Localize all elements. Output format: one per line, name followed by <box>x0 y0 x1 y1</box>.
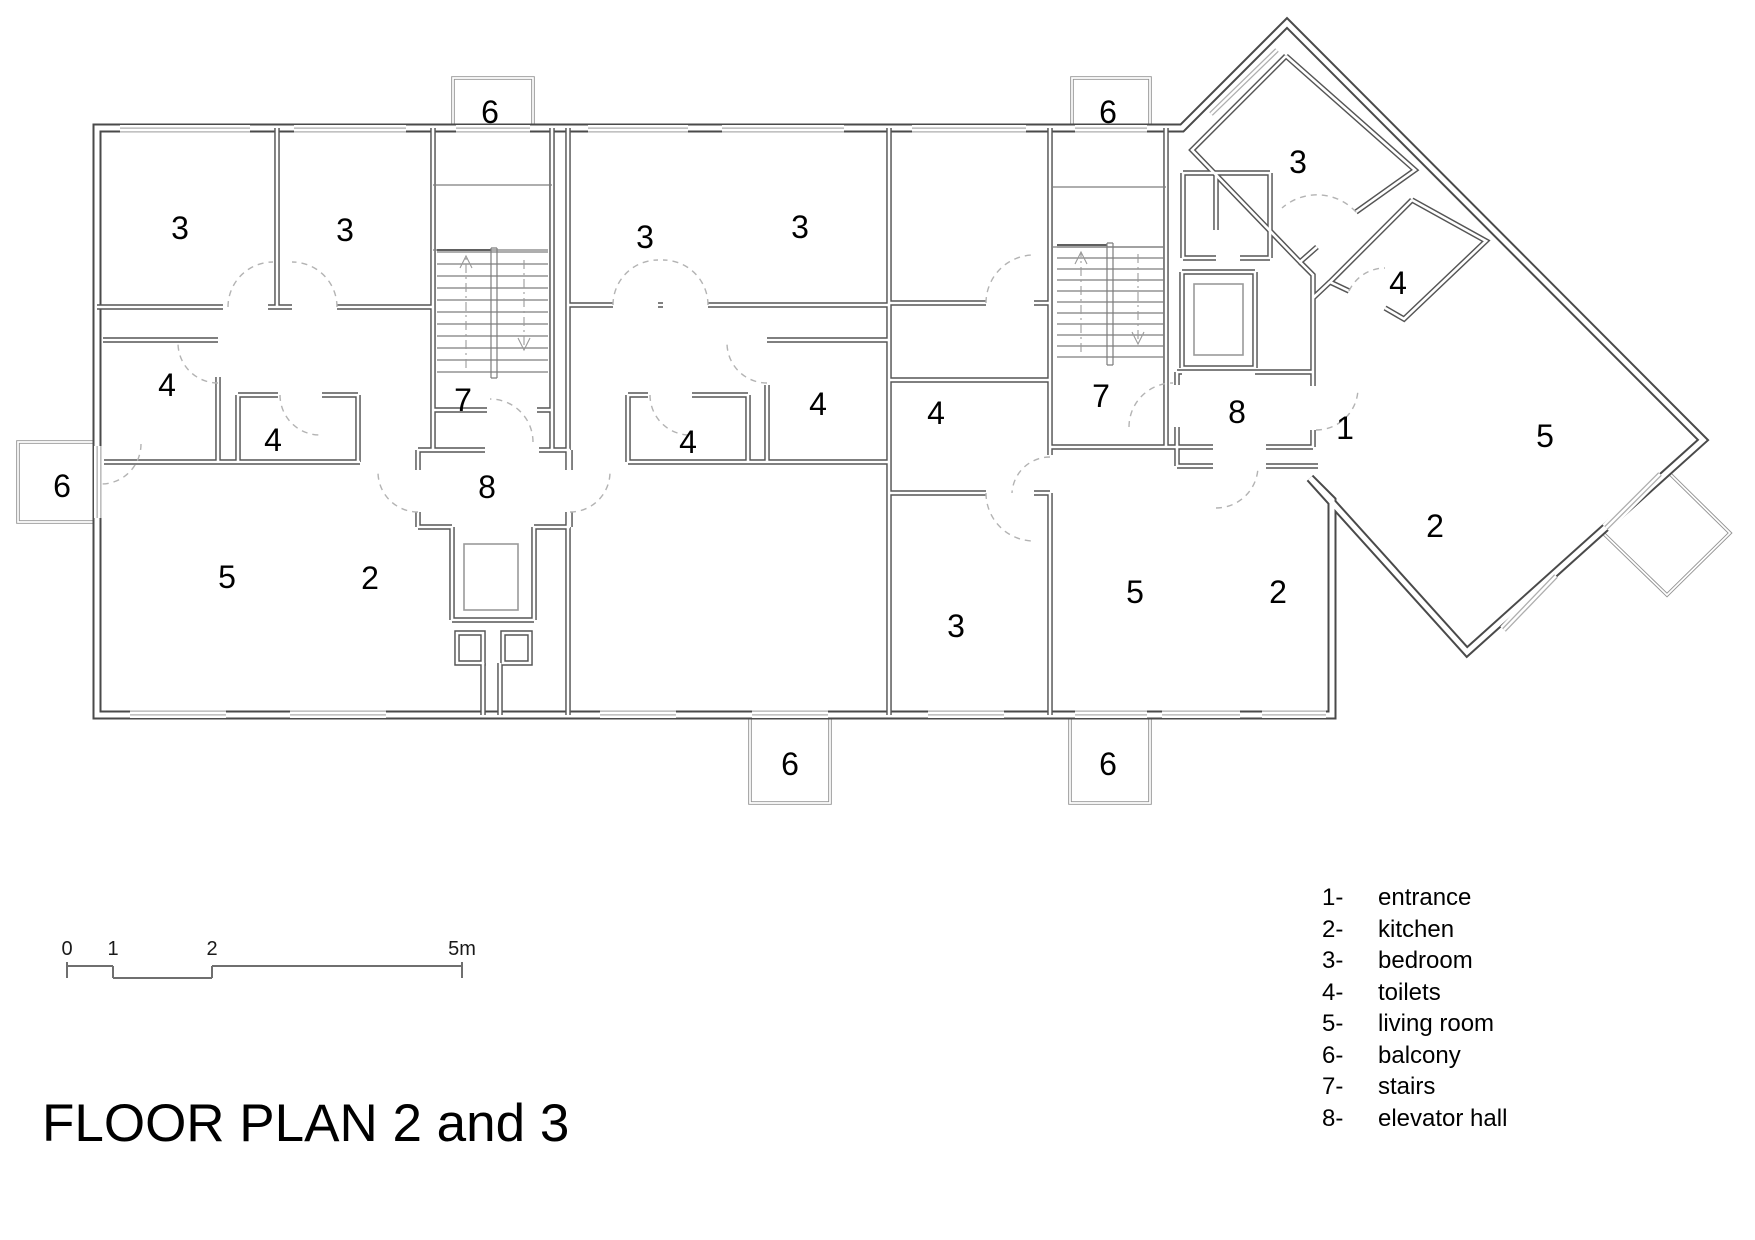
room-label: 5 <box>1126 574 1144 610</box>
stairs-right <box>1053 187 1166 365</box>
elevator-left <box>464 544 518 610</box>
legend-label: stairs <box>1378 1071 1435 1103</box>
legend-item: 1-entrance <box>1322 882 1507 914</box>
room-label: 5 <box>218 559 236 595</box>
room-label: 6 <box>781 746 799 782</box>
legend-item: 8-elevator hall <box>1322 1103 1507 1135</box>
room-label: 8 <box>478 469 496 505</box>
room-label: 2 <box>1269 574 1287 610</box>
room-label: 4 <box>1389 265 1407 301</box>
legend-number: 3- <box>1322 945 1378 977</box>
scale-label: 5m <box>448 938 476 960</box>
legend-label: living room <box>1378 1008 1494 1040</box>
scale-label: 2 <box>206 938 217 960</box>
room-label: 3 <box>1289 144 1307 180</box>
room-label: 6 <box>481 94 499 130</box>
legend-number: 5- <box>1322 1008 1378 1040</box>
elevator-right <box>1194 284 1243 355</box>
room-label: 4 <box>264 422 282 458</box>
scale-label: 1 <box>107 938 118 960</box>
legend-item: 5-living room <box>1322 1008 1507 1040</box>
legend-label: bedroom <box>1378 945 1473 977</box>
room-label: 3 <box>636 219 654 255</box>
legend-item: 3-bedroom <box>1322 945 1507 977</box>
room-label: 3 <box>791 209 809 245</box>
stairs-left <box>433 185 552 378</box>
room-label: 4 <box>679 424 697 460</box>
room-label: 3 <box>336 212 354 248</box>
room-label: 2 <box>1426 508 1444 544</box>
legend-item: 7-stairs <box>1322 1071 1507 1103</box>
legend-label: toilets <box>1378 977 1441 1009</box>
legend-item: 4-toilets <box>1322 977 1507 1009</box>
windows <box>99 50 1660 713</box>
room-label: 8 <box>1228 394 1246 430</box>
legend-number: 8- <box>1322 1103 1378 1135</box>
interior-walls <box>97 56 1486 715</box>
room-label: 3 <box>171 210 189 246</box>
scale-label: 0 <box>61 938 72 960</box>
room-label: 5 <box>1536 418 1554 454</box>
room-label: 4 <box>809 386 827 422</box>
room-label: 4 <box>158 367 176 403</box>
scale-bar: 0125m <box>61 938 475 978</box>
legend-label: entrance <box>1378 882 1471 914</box>
legend-label: elevator hall <box>1378 1103 1507 1135</box>
legend-item: 2-kitchen <box>1322 914 1507 946</box>
room-label: 1 <box>1336 410 1354 446</box>
room-label: 6 <box>1099 94 1117 130</box>
legend-number: 4- <box>1322 977 1378 1009</box>
room-label: 6 <box>53 468 71 504</box>
room-label: 4 <box>927 395 945 431</box>
room-label: 6 <box>1099 746 1117 782</box>
room-label: 2 <box>361 560 379 596</box>
room-label: 3 <box>947 608 965 644</box>
page-title: FLOOR PLAN 2 and 3 <box>42 1093 569 1154</box>
legend-label: balcony <box>1378 1040 1461 1072</box>
room-label: 7 <box>1092 378 1110 414</box>
legend-item: 6-balcony <box>1322 1040 1507 1072</box>
legend-number: 6- <box>1322 1040 1378 1072</box>
room-label: 7 <box>454 382 472 418</box>
legend: 1-entrance2-kitchen3-bedroom4-toilets5-l… <box>1322 882 1507 1134</box>
legend-number: 7- <box>1322 1071 1378 1103</box>
legend-label: kitchen <box>1378 914 1454 946</box>
legend-number: 2- <box>1322 914 1378 946</box>
legend-number: 1- <box>1322 882 1378 914</box>
